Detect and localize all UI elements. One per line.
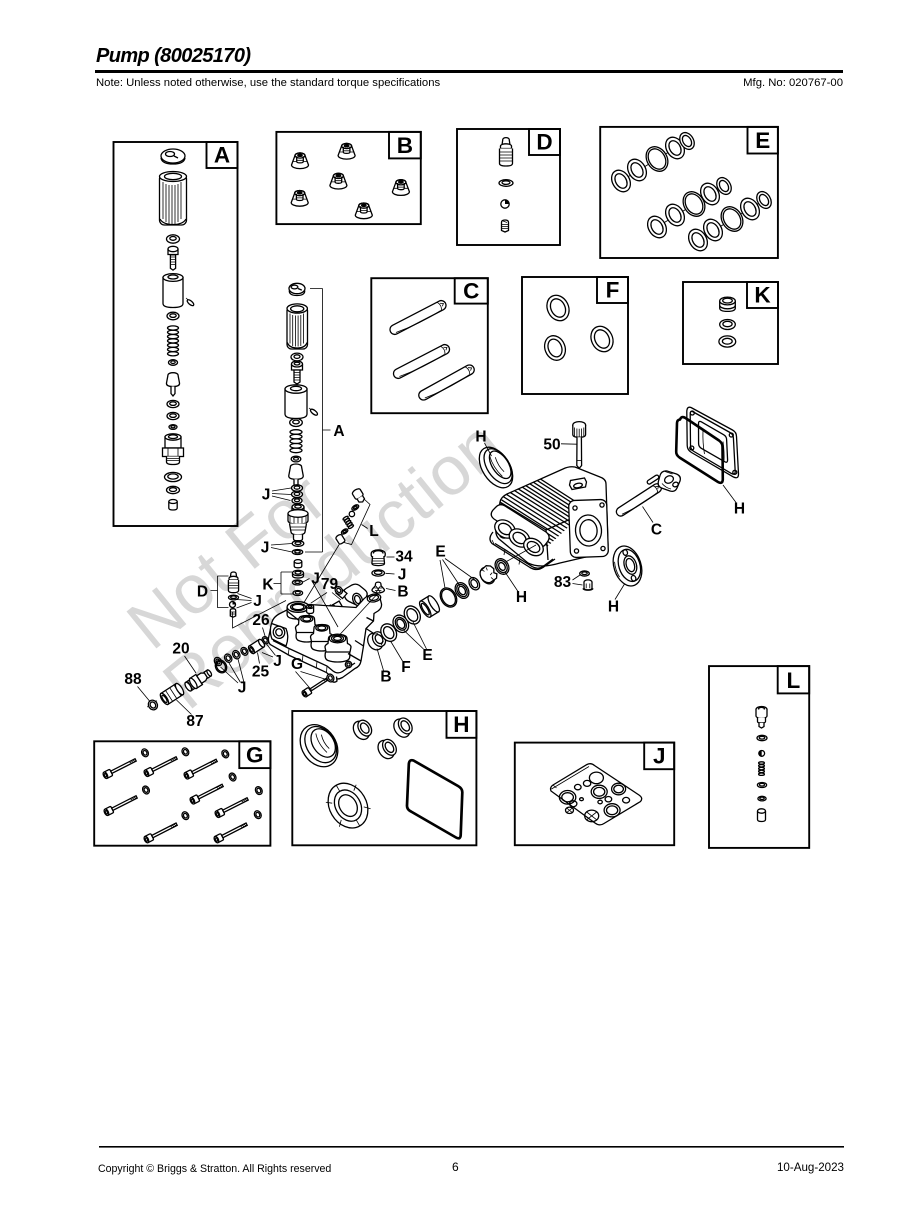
svg-text:E: E [422, 647, 432, 664]
svg-text:K: K [754, 283, 771, 308]
svg-text:26: 26 [252, 612, 270, 629]
svg-text:83: 83 [554, 574, 572, 591]
svg-text:10-Aug-2023: 10-Aug-2023 [777, 1161, 844, 1174]
svg-text:G: G [291, 656, 303, 673]
svg-text:Mfg. No: 020767-00: Mfg. No: 020767-00 [743, 77, 843, 89]
svg-text:Pump (80025170): Pump (80025170) [96, 45, 251, 67]
svg-text:C: C [651, 522, 662, 539]
svg-text:J: J [262, 487, 271, 504]
svg-text:J: J [261, 540, 270, 557]
svg-text:B: B [397, 133, 413, 158]
svg-text:6: 6 [452, 1160, 459, 1174]
svg-text:D: D [536, 130, 552, 155]
svg-text:Copyright © Briggs & Stratton: Copyright © Briggs & Stratton. All Right… [98, 1163, 331, 1175]
svg-text:J: J [398, 567, 407, 584]
svg-text:L: L [369, 523, 378, 540]
svg-text:H: H [516, 589, 527, 606]
svg-text:C: C [463, 279, 479, 304]
svg-text:87: 87 [186, 713, 203, 730]
svg-text:E: E [755, 128, 770, 153]
svg-text:20: 20 [172, 641, 189, 658]
svg-text:A: A [333, 423, 344, 440]
svg-text:79: 79 [321, 576, 339, 593]
svg-text:H: H [475, 429, 486, 446]
svg-text:F: F [606, 278, 620, 303]
svg-text:D: D [197, 584, 208, 601]
svg-text:H: H [608, 599, 619, 616]
svg-text:K: K [262, 577, 274, 594]
svg-text:Note: Unless noted otherwise,: Note: Unless noted otherwise, use the st… [96, 77, 440, 89]
svg-text:B: B [380, 669, 391, 686]
svg-text:88: 88 [124, 671, 142, 688]
svg-text:J: J [238, 680, 247, 697]
svg-text:A: A [214, 143, 230, 168]
svg-text:J: J [273, 653, 282, 670]
svg-text:J: J [253, 593, 262, 610]
svg-text:L: L [787, 668, 801, 693]
svg-text:B: B [397, 584, 408, 601]
svg-text:G: G [246, 743, 264, 768]
svg-text:F: F [401, 659, 410, 676]
svg-text:50: 50 [543, 437, 560, 454]
svg-text:H: H [453, 712, 469, 737]
svg-text:H: H [734, 501, 745, 518]
svg-text:J: J [653, 744, 666, 769]
svg-text:34: 34 [395, 549, 413, 566]
svg-text:E: E [435, 544, 445, 561]
svg-text:25: 25 [252, 664, 270, 681]
